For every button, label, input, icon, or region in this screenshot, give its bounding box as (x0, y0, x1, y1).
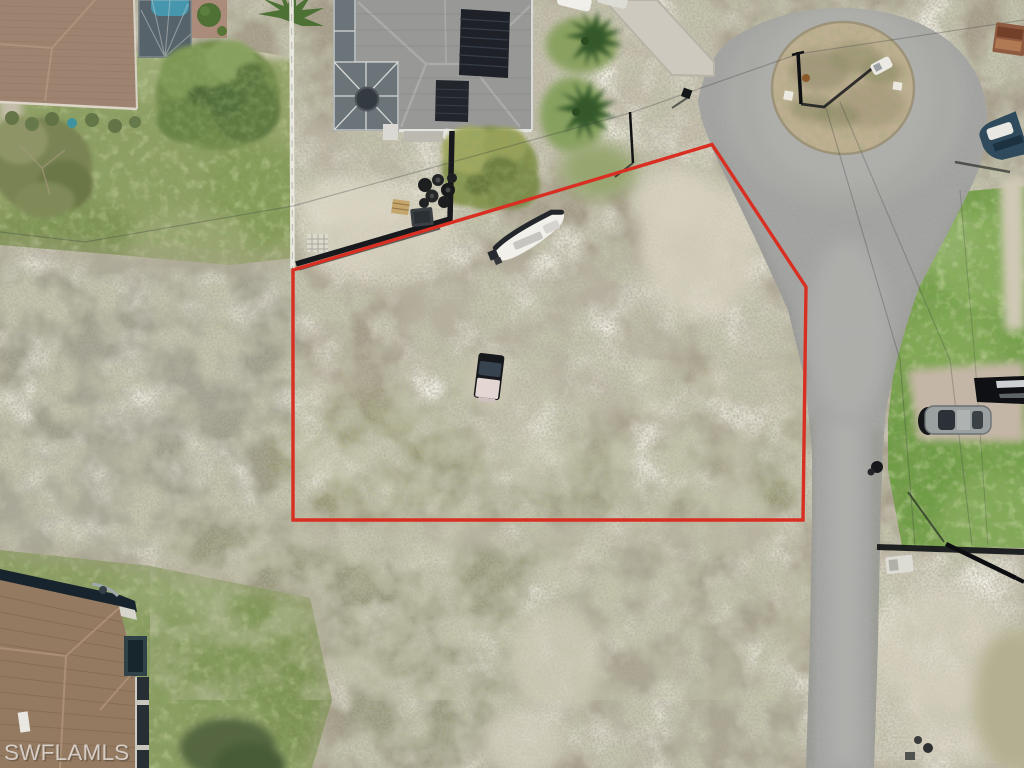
svg-text:SWFLAMLS: SWFLAMLS (4, 740, 129, 765)
